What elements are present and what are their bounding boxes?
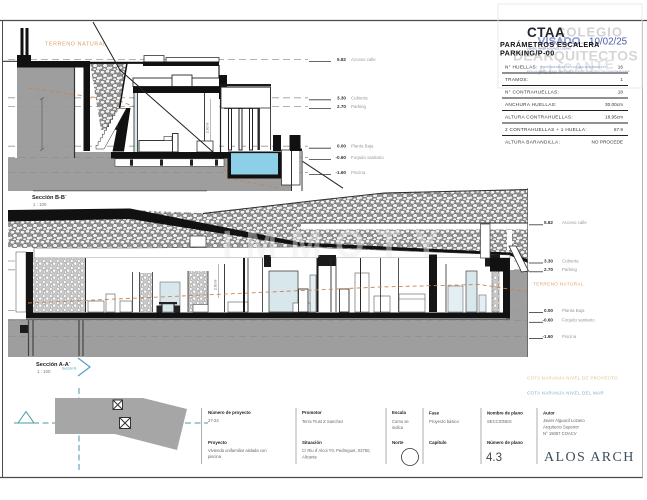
svg-text:1: 1 [620,77,623,82]
svg-text:3.30: 3.30 [544,258,553,263]
svg-text:0.00: 0.00 [544,308,553,313]
svg-text:SECCIONES: SECCIONES [487,419,512,424]
svg-text:Nombre de plano: Nombre de plano [487,411,523,416]
svg-text:Vivienda unifamiliar aislada c: Vivienda unifamiliar aislada con [208,448,267,453]
svg-text:Cubierta: Cubierta [562,258,579,263]
svg-text:Forjado sanitario: Forjado sanitario [562,318,595,323]
svg-text:Alicante: Alicante [302,455,318,460]
svg-text:Proyecto básico: Proyecto básico [429,419,459,424]
svg-text:COTA NARANJA NIVEL DE PROYECTO: COTA NARANJA NIVEL DE PROYECTO [527,376,618,381]
svg-text:18: 18 [618,90,624,95]
svg-text:ALOS ARCH: ALOS ARCH [544,450,635,465]
svg-text:Planta Baja: Planta Baja [351,144,374,149]
svg-text:Sección B-B´: Sección B-B´ [32,195,67,201]
svg-text:Piscina: Piscina [351,170,366,175]
svg-text:N° HUELLAS:: N° HUELLAS: [505,65,538,70]
svg-text:TERRENO NATURAL: TERRENO NATURAL [533,282,584,287]
svg-text:COTA NARANJA NIVEL DEL MAR: COTA NARANJA NIVEL DEL MAR [527,391,604,396]
svg-text:Acceso calle: Acceso calle [562,220,587,225]
svg-text:16: 16 [618,65,624,70]
svg-text:-0.60: -0.60 [543,318,554,323]
svg-text:1 : 100: 1 : 100 [33,202,47,207]
svg-text:Escala: Escala [392,410,406,415]
svg-text:Acceso calle: Acceso calle [351,57,376,62]
svg-text:ESTE DOCUMENTO HA SIDO VISADO: ESTE DOCUMENTO HA SIDO VISADO POR EL COL… [527,70,630,73]
svg-text:Piscina: Piscina [562,334,577,339]
svg-text:TERRENO NATURAL: TERRENO NATURAL [45,42,107,48]
svg-text:PARKING/P-00: PARKING/P-00 [500,49,555,58]
svg-text:18.95cm: 18.95cm [605,115,623,120]
svg-text:piscina: piscina [208,454,222,459]
svg-text:Arquitecto Superior: Arquitecto Superior [543,425,579,430]
svg-text:Javier Alguacil Lozano: Javier Alguacil Lozano [543,418,585,423]
svg-text:2.60 m: 2.60 m [206,122,210,133]
svg-text:-1.60: -1.60 [336,170,347,175]
svg-text:Terra Trust Z Sanchez: Terra Trust Z Sanchez [302,419,343,424]
svg-text:1 : 100: 1 : 100 [37,369,51,374]
svg-text:NO PROCEDE: NO PROCEDE [591,140,623,145]
svg-text:C/ Riu d´Alcoi Y0, Pedreguet,: C/ Riu d´Alcoi Y0, Pedreguet, 03750, [302,448,371,453]
svg-text:3.30: 3.30 [337,95,346,100]
svg-text:5.82: 5.82 [337,57,346,62]
svg-text:Promotor: Promotor [302,410,322,415]
svg-text:Como se: Como se [392,419,409,424]
svg-text:TRAMOS:: TRAMOS: [505,77,528,82]
svg-text:ANCHURA HUELLAS:: ANCHURA HUELLAS: [505,102,557,107]
svg-text:2.60 m: 2.60 m [214,279,218,290]
svg-text:N° 15067 COACV: N° 15067 COACV [543,431,577,436]
svg-text:Proyecto: Proyecto [208,440,227,445]
svg-text:indica: indica [392,425,404,430]
svg-text:ALTURA CONTRAHUELLAS:: ALTURA CONTRAHUELLAS: [505,115,573,120]
svg-text:Número de proyecto: Número de proyecto [208,410,251,415]
svg-text:Norte: Norte [392,440,404,445]
svg-text:2 CONTRAHUELLAS + 1 HUELLA:: 2 CONTRAHUELLAS + 1 HUELLA: [505,127,587,132]
svg-text:-1.60: -1.60 [543,334,554,339]
svg-text:Planta Baja: Planta Baja [562,308,585,313]
svg-text:67.9: 67.9 [614,127,624,132]
svg-text:Cubierta: Cubierta [351,95,368,100]
svg-text:Autor: Autor [543,411,555,416]
svg-text:ALTURA BARANDILLA:: ALTURA BARANDILLA: [505,140,560,145]
svg-text:Situación: Situación [302,440,322,445]
svg-text:2.70: 2.70 [544,267,553,272]
svg-text:Fase: Fase [429,411,440,416]
svg-text:0.00: 0.00 [337,144,346,149]
svg-text:Número de plano: Número de plano [487,440,523,445]
svg-text:Capítulo: Capítulo [429,440,447,445]
svg-text:27-24: 27-24 [208,418,219,423]
svg-text:5.82: 5.82 [544,220,553,225]
svg-text:30.00cm: 30.00cm [605,102,623,107]
svg-text:4.3: 4.3 [486,452,502,464]
svg-text:2.70: 2.70 [337,104,346,109]
svg-text:N° CONTRAHUELLAS:: N° CONTRAHUELLAS: [505,90,559,95]
svg-text:IMMOTY: IMMOTY [222,224,452,266]
svg-text:Forjado sanitario: Forjado sanitario [351,155,384,160]
svg-text:Parking: Parking [562,267,577,272]
svg-text:N° EXP 2025-001234 TIPO A-0: N° EXP 2025-001234 TIPO A-01 REG.SEGURID… [540,65,606,69]
svg-text:-0.60: -0.60 [336,155,347,160]
svg-text:Sección B: Sección B [62,367,76,371]
svg-text:Parking: Parking [351,104,366,109]
